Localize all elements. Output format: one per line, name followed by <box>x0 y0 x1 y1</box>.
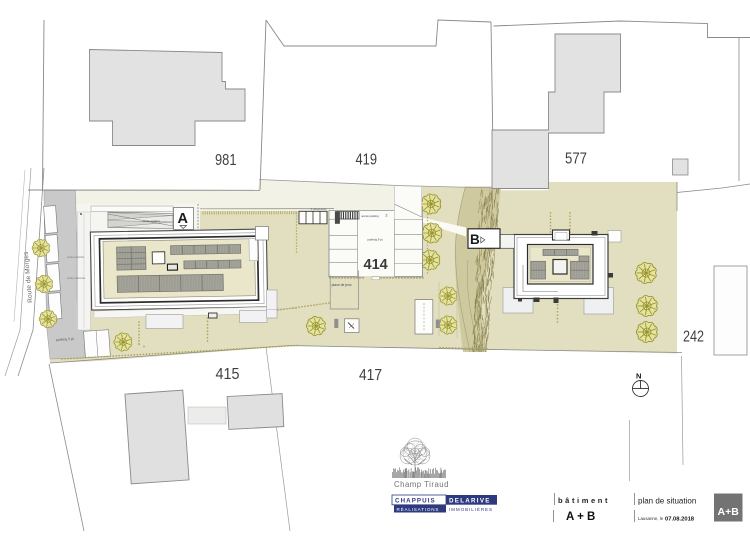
svg-text:plan de situation: plan de situation <box>638 497 696 506</box>
svg-text:place de jeux: place de jeux <box>332 283 352 287</box>
svg-text:981: 981 <box>215 152 237 169</box>
svg-text:accès parking: accès parking <box>362 214 380 218</box>
svg-text:B: B <box>470 232 480 247</box>
svg-text:2: 2 <box>386 214 388 218</box>
svg-text:419: 419 <box>356 152 378 169</box>
svg-text:417: 417 <box>359 367 382 384</box>
svg-text:accès véhicules: accès véhicules <box>67 276 86 280</box>
svg-text:RÉALISATIONS: RÉALISATIONS <box>397 506 440 512</box>
svg-text:CHAPPUIS: CHAPPUIS <box>395 498 436 505</box>
svg-text:415: 415 <box>216 366 240 383</box>
svg-text:N: N <box>636 372 641 381</box>
svg-text:A+B: A+B <box>718 506 740 518</box>
svg-text:4 vélos/motos: 4 vélos/motos <box>311 207 328 211</box>
svg-text:IMMOBILIÈRES: IMMOBILIÈRES <box>449 506 493 512</box>
svg-text:DELARIVE: DELARIVE <box>449 498 491 505</box>
svg-text:414: 414 <box>364 257 388 273</box>
svg-text:07.08.2018: 07.08.2018 <box>665 516 695 522</box>
svg-text:sortie parking: sortie parking <box>143 219 160 223</box>
svg-text:bâtiment: bâtiment <box>558 496 610 505</box>
svg-text:Lausanne, le: Lausanne, le <box>638 516 664 521</box>
svg-text:577: 577 <box>565 151 587 168</box>
svg-text:parking 9 pl.: parking 9 pl. <box>368 238 384 242</box>
svg-text:A: A <box>178 211 189 227</box>
svg-text:242: 242 <box>683 329 704 346</box>
svg-text:accès pé/véhic.: accès pé/véhic. <box>67 255 85 259</box>
svg-text:A + B: A + B <box>566 511 595 523</box>
svg-text:Champ Tiraud: Champ Tiraud <box>394 480 449 489</box>
